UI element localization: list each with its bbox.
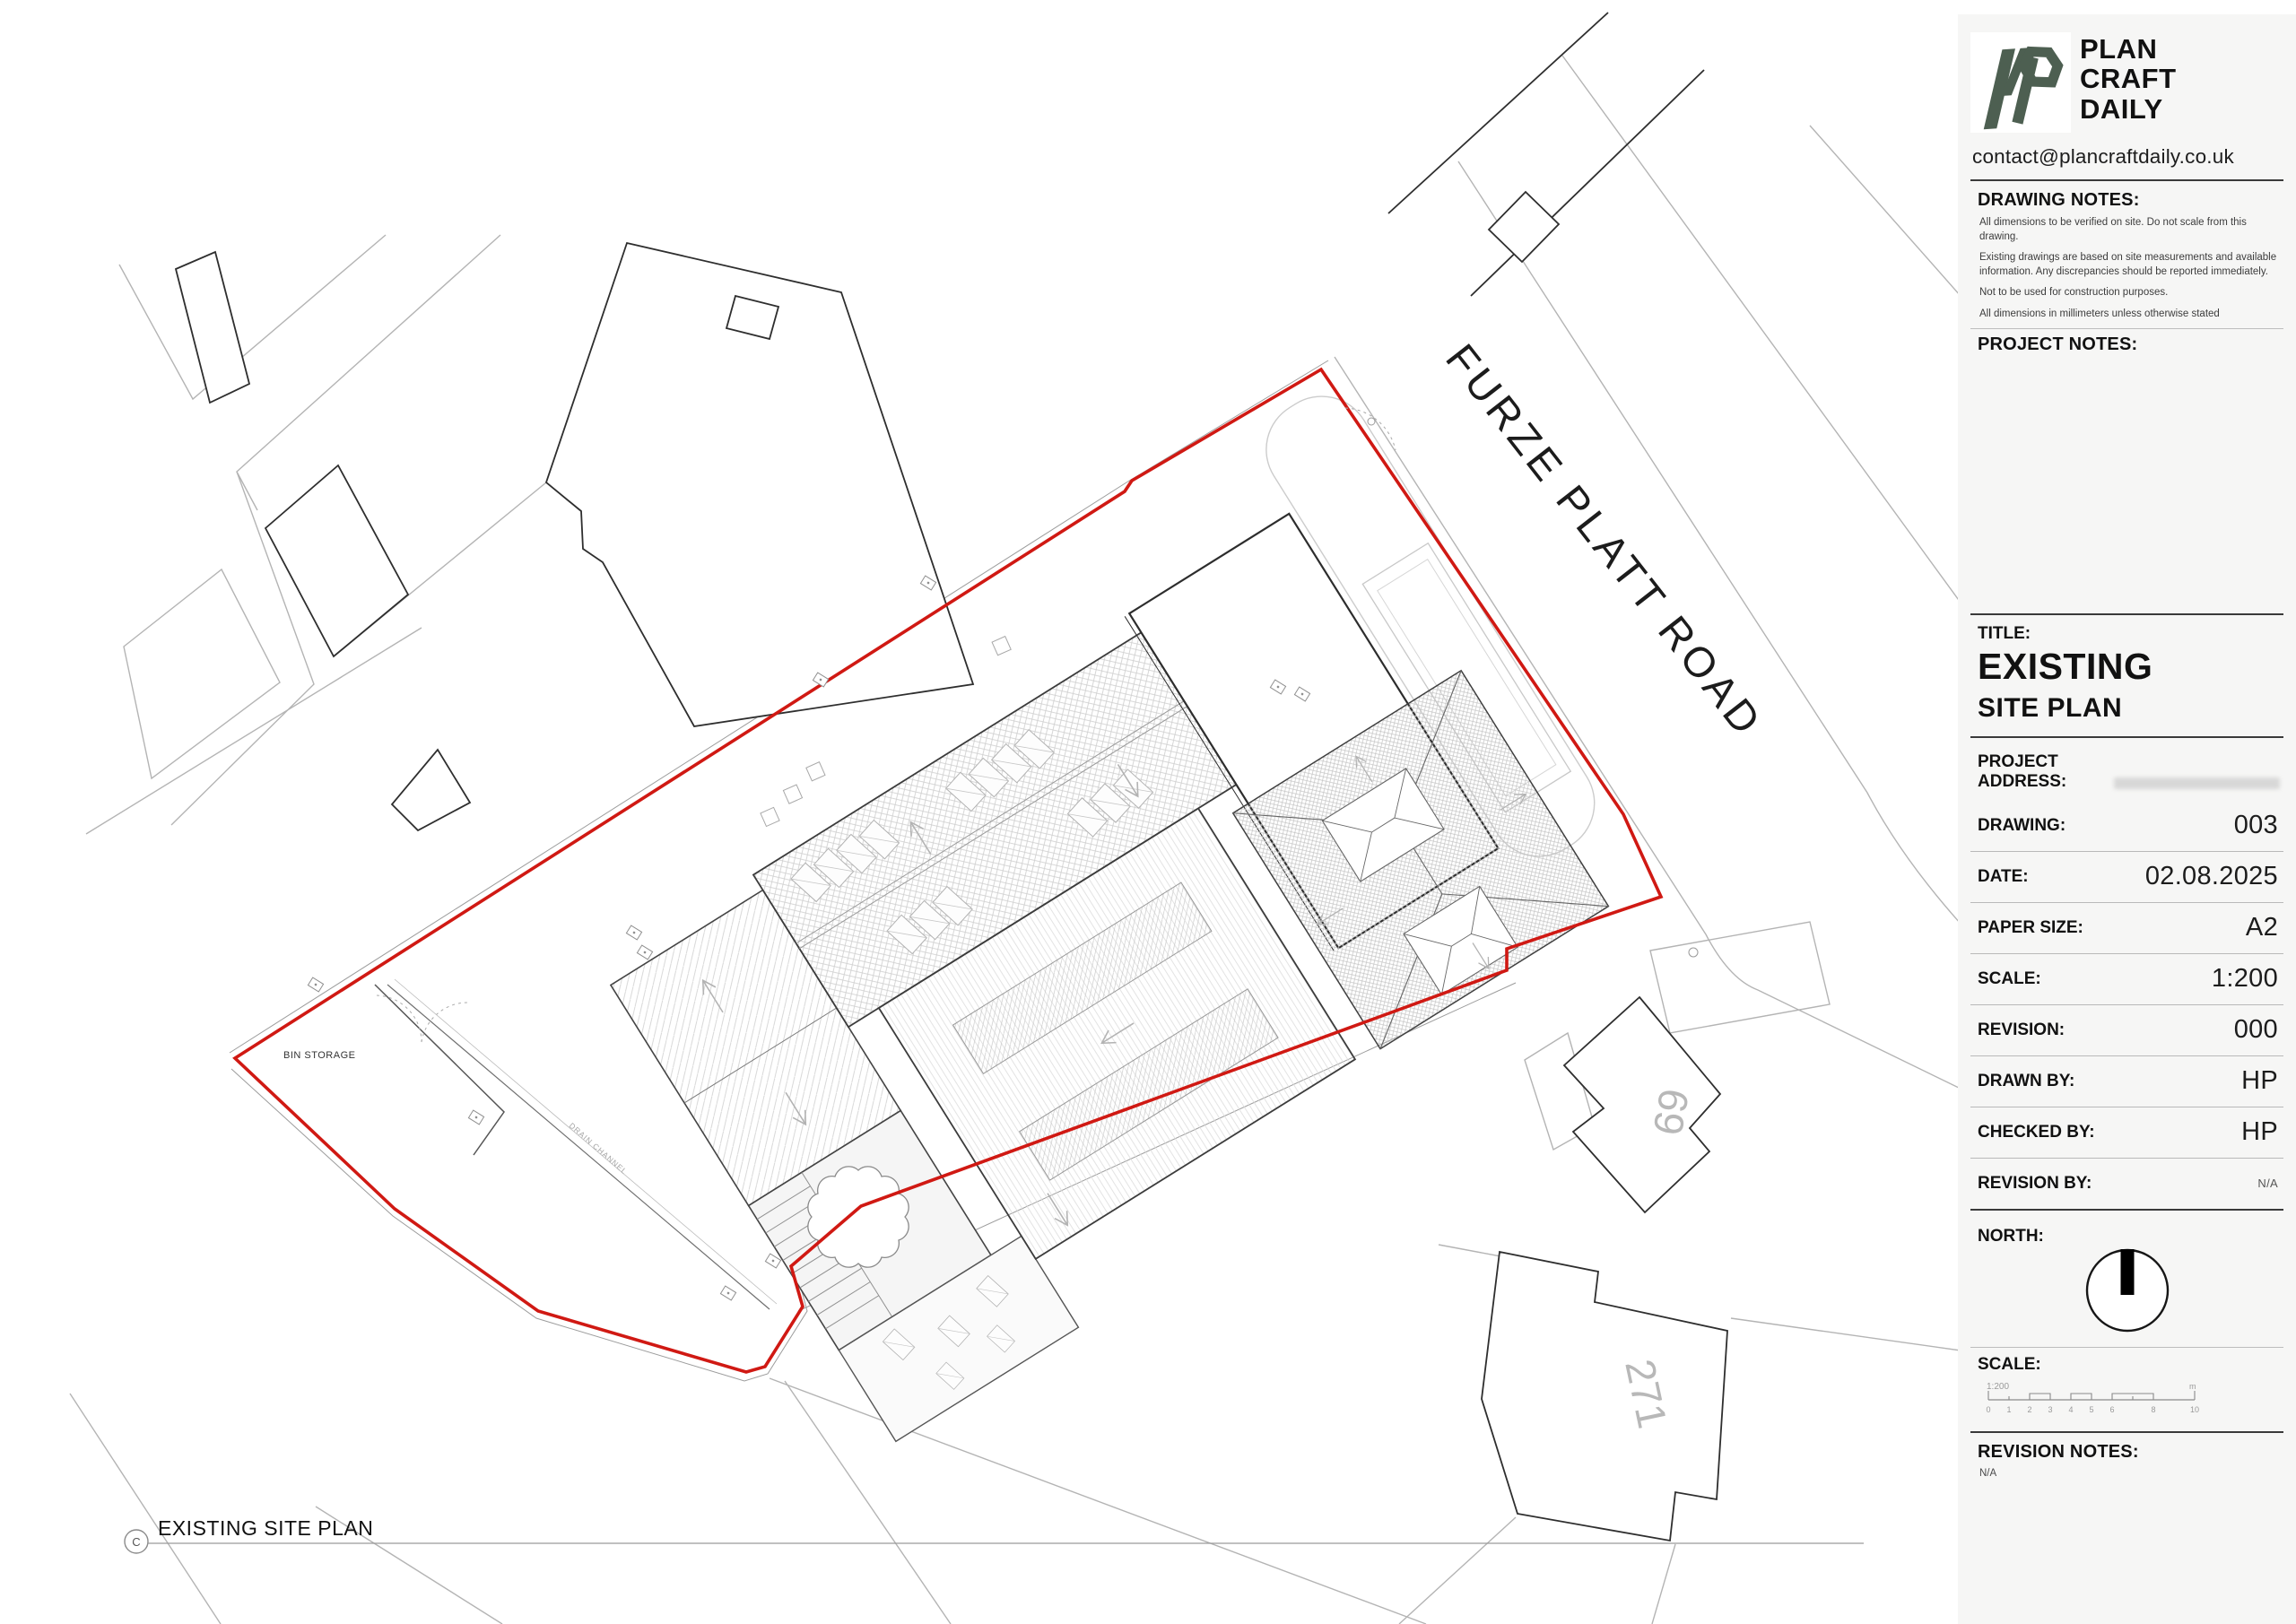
drawing-note: All dimensions to be verified on site. D… (1979, 216, 2278, 244)
drawing-note: Existing drawings are based on site meas… (1979, 251, 2278, 279)
caption-title: EXISTING SITE PLAN (158, 1516, 373, 1540)
revision-notes-heading: REVISION NOTES: (1978, 1442, 2283, 1463)
house-271-outline (1482, 1252, 1727, 1541)
company-name-line: PLAN (2080, 34, 2177, 64)
scalebar-unit: m (2189, 1382, 2196, 1391)
field-row-revision-by: REVISION BY: N/A (1970, 1158, 2283, 1209)
bin-storage-label: BIN STORAGE (283, 1050, 355, 1061)
field-row-drawn-by: DRAWN BY: HP (1970, 1055, 2283, 1107)
company-name-line: DAILY (2080, 94, 2177, 124)
divider (1970, 1347, 2283, 1348)
svg-text:4: 4 (2068, 1405, 2073, 1414)
project-address-row: PROJECT ADDRESS: (1970, 747, 2283, 801)
revision-notes-value: N/A (1979, 1468, 2283, 1479)
project-address-label: PROJECT ADDRESS: (1978, 752, 2094, 792)
title-section: TITLE: EXISTING SITE PLAN (1970, 624, 2283, 724)
site-plan-drawing: FURZE PLATT ROAD BIN STORAGE DRAIN CHANN… (0, 0, 1961, 1624)
field-row-scale: SCALE: 1:200 (1970, 953, 2283, 1004)
north-section: NORTH: (1970, 1220, 2283, 1347)
scalebar-ratio: 1:200 (1987, 1382, 2009, 1392)
drawing-notes-section: DRAWING NOTES: All dimensions to be veri… (1970, 190, 2283, 321)
field-rows: DRAWING: 003 DATE: 02.08.2025 PAPER SIZE… (1970, 801, 2283, 1209)
project-address-redacted-value (2114, 777, 2280, 789)
svg-text:2: 2 (2027, 1405, 2031, 1414)
scale-bar: 1:200 m 0 1 2 3 4 5 (1978, 1378, 2247, 1418)
field-row-paper-size: PAPER SIZE: A2 (1970, 902, 2283, 953)
divider (1970, 736, 2283, 738)
site-plan-canvas: FURZE PLATT ROAD BIN STORAGE DRAIN CHANN… (0, 0, 1961, 1624)
field-row-checked-by: CHECKED BY: HP (1970, 1107, 2283, 1158)
project-notes-section: PROJECT NOTES: (1970, 334, 2283, 613)
scalebar-section: SCALE: 1:200 m 0 1 2 3 (1970, 1355, 2283, 1422)
company-name-line: CRAFT (2080, 64, 2177, 93)
field-row-revision: REVISION: 000 (1970, 1004, 2283, 1055)
divider (1970, 1209, 2283, 1211)
divider (1970, 328, 2283, 329)
title-block-panel: PLAN CRAFT DAILY contact@plancraftdaily.… (1958, 14, 2296, 1624)
field-row-date: DATE: 02.08.2025 (1970, 851, 2283, 902)
house-69-label: 69 (1644, 1085, 1698, 1138)
project-notes-heading: PROJECT NOTES: (1978, 334, 2283, 355)
svg-text:5: 5 (2089, 1405, 2093, 1414)
drawing-notes-heading: DRAWING NOTES: (1978, 190, 2283, 211)
project-notes-empty (1970, 360, 2283, 613)
scalebar-label: SCALE: (1978, 1355, 2283, 1375)
svg-text:10: 10 (2190, 1405, 2199, 1414)
company-name: PLAN CRAFT DAILY (2080, 32, 2177, 124)
svg-text:3: 3 (2048, 1405, 2052, 1414)
svg-text:6: 6 (2109, 1405, 2114, 1414)
contact-email[interactable]: contact@plancraftdaily.co.uk (1972, 145, 2283, 169)
divider (1970, 613, 2283, 615)
tree (808, 1167, 909, 1267)
north-compass-icon (2078, 1241, 2177, 1340)
svg-text:8: 8 (2151, 1405, 2155, 1414)
drawing-sheet: FURZE PLATT ROAD BIN STORAGE DRAIN CHANN… (0, 0, 2296, 1624)
title-label: TITLE: (1978, 624, 2283, 644)
caption-symbol: C (132, 1535, 140, 1549)
drawing-note: All dimensions in millimeters unless oth… (1979, 308, 2278, 322)
drain-channel-label: DRAIN CHANNEL (568, 1121, 630, 1177)
revision-notes-section: REVISION NOTES: N/A (1970, 1442, 2283, 1479)
divider (1970, 1431, 2283, 1433)
brand-header: PLAN CRAFT DAILY (1970, 32, 2283, 133)
drawing-title-line2: SITE PLAN (1978, 693, 2283, 724)
svg-text:1: 1 (2006, 1405, 2011, 1414)
svg-text:0: 0 (1986, 1405, 1990, 1414)
drawing-note: Not to be used for construction purposes… (1979, 286, 2278, 300)
divider (1970, 179, 2283, 181)
plancraftdaily-logo-icon (1970, 32, 2071, 133)
drawing-title-line1: EXISTING (1978, 646, 2283, 688)
field-row-drawing: DRAWING: 003 (1970, 801, 2283, 851)
